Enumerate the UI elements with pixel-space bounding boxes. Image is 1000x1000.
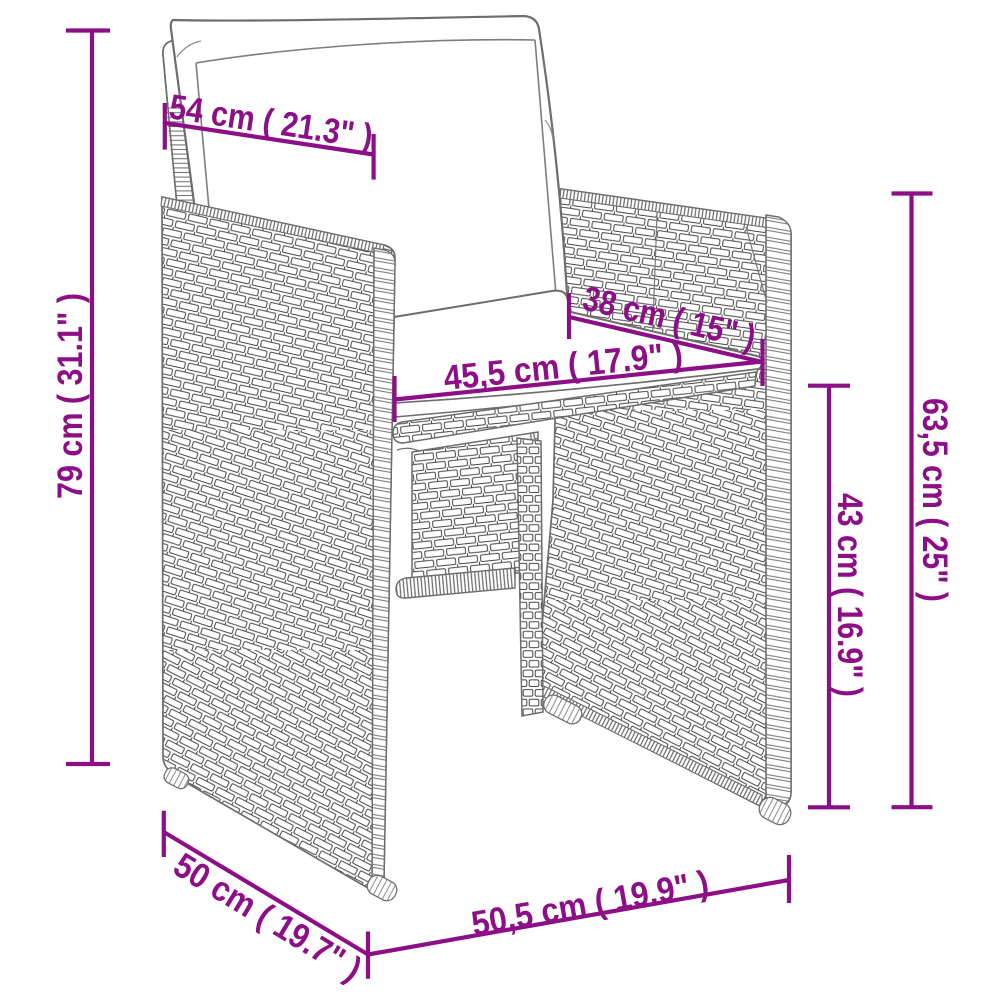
svg-text:43 cm ( 16.9" ): 43 cm ( 16.9" ) [830, 493, 869, 697]
svg-text:79 cm ( 31.1" ): 79 cm ( 31.1" ) [51, 293, 90, 499]
svg-text:63,5 cm ( 25" ): 63,5 cm ( 25" ) [915, 398, 954, 602]
